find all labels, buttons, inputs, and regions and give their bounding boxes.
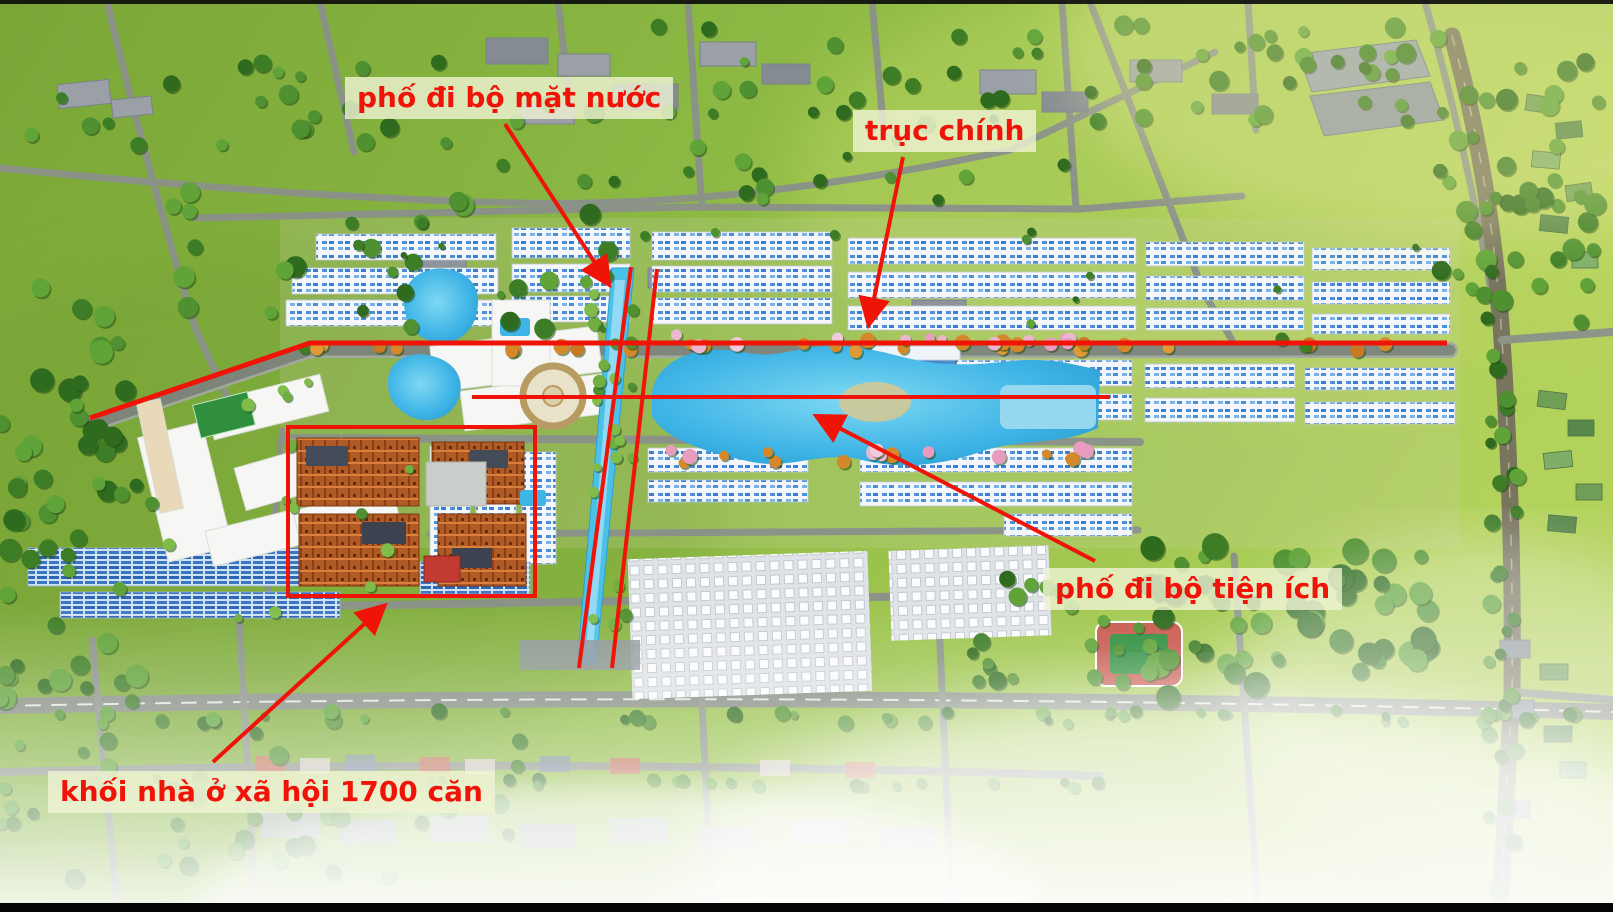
tree	[497, 291, 505, 299]
tree	[1510, 506, 1522, 518]
tree	[671, 329, 682, 340]
tree	[808, 107, 819, 118]
tree	[615, 436, 626, 447]
tree	[30, 368, 54, 392]
tree	[580, 276, 592, 288]
tree	[265, 306, 278, 319]
parking-lot	[426, 462, 486, 506]
tree	[682, 449, 697, 464]
townhouse-row	[1312, 314, 1450, 334]
tree	[1412, 244, 1419, 251]
tree	[593, 375, 606, 388]
tree	[180, 182, 200, 202]
tree	[1026, 319, 1035, 328]
tree	[304, 378, 312, 386]
tree	[449, 192, 468, 211]
townhouse-row	[848, 238, 1136, 264]
building	[1568, 420, 1594, 436]
tree	[849, 92, 865, 108]
tree	[273, 67, 284, 78]
red-kindergarten	[424, 556, 460, 582]
tree	[701, 21, 716, 36]
tree	[827, 37, 843, 53]
tree	[992, 90, 1009, 107]
tree	[431, 55, 446, 70]
tree	[813, 174, 827, 188]
tree	[397, 284, 414, 301]
tree	[1274, 285, 1282, 293]
tree	[279, 85, 298, 104]
tree	[1453, 269, 1464, 280]
townhouse-row	[848, 306, 1136, 330]
tree	[1013, 47, 1023, 57]
tree	[589, 289, 599, 299]
tree	[15, 444, 32, 461]
tree	[165, 198, 181, 214]
tree	[282, 392, 292, 402]
tree	[817, 76, 834, 93]
tree	[959, 170, 973, 184]
townhouse-row	[1312, 282, 1450, 304]
townhouse-row	[1312, 248, 1450, 270]
tree	[284, 440, 297, 453]
tree	[843, 152, 852, 161]
tree	[438, 243, 444, 249]
tree	[401, 252, 407, 258]
tree	[1499, 391, 1516, 408]
tree	[357, 305, 369, 317]
tree	[178, 297, 199, 318]
tree	[1587, 243, 1600, 256]
tree	[40, 539, 57, 556]
tree	[905, 78, 920, 93]
tree	[609, 176, 620, 187]
townhouse-row	[522, 452, 556, 564]
tree	[883, 67, 901, 85]
tree	[837, 455, 851, 469]
building	[111, 96, 153, 118]
tree	[1531, 278, 1547, 294]
tree	[497, 159, 510, 172]
tree	[719, 451, 729, 461]
tree	[690, 139, 706, 155]
tree	[103, 427, 123, 447]
tree	[72, 299, 92, 319]
townhouse-row	[1145, 364, 1295, 388]
annotation-label-social-housing: khối nhà ở xã hội 1700 căn	[48, 771, 495, 813]
townhouse-row	[648, 480, 808, 502]
tree	[740, 57, 749, 66]
tree	[255, 96, 267, 108]
tree	[999, 571, 1015, 587]
tree	[849, 345, 862, 358]
tree	[584, 303, 598, 317]
tree	[173, 266, 195, 288]
tree	[683, 166, 694, 177]
tree	[145, 497, 159, 511]
tree	[3, 509, 25, 531]
tree	[1562, 238, 1584, 260]
tree	[1350, 344, 1364, 358]
tree	[90, 340, 114, 364]
tree	[130, 479, 143, 492]
tree	[1024, 578, 1038, 592]
tree	[21, 550, 40, 569]
tree	[308, 110, 321, 123]
townhouse-row	[1145, 398, 1295, 422]
tree	[92, 477, 105, 490]
tree	[355, 61, 370, 76]
tree	[357, 133, 375, 151]
roof-deck	[306, 446, 348, 466]
tree	[598, 360, 609, 371]
tree	[923, 446, 935, 458]
tree	[187, 239, 202, 254]
townhouse-row	[652, 232, 832, 260]
tree	[111, 336, 125, 350]
tree	[34, 470, 52, 488]
tree	[1140, 536, 1164, 560]
tree	[1476, 287, 1493, 304]
tree	[1079, 444, 1094, 459]
tree	[509, 279, 527, 297]
tree	[1486, 349, 1500, 363]
tree	[627, 304, 639, 316]
tree	[739, 185, 755, 201]
building	[1543, 451, 1573, 470]
tree	[289, 503, 299, 513]
tree	[1485, 265, 1498, 278]
tree	[1288, 548, 1309, 569]
tree	[992, 450, 1006, 464]
tree	[1492, 475, 1508, 491]
tree	[163, 75, 180, 92]
tree	[345, 217, 358, 230]
tree	[713, 81, 731, 99]
tree	[62, 564, 75, 577]
tree	[1484, 515, 1500, 531]
tree	[740, 81, 757, 98]
tree	[885, 172, 896, 183]
tree	[763, 447, 773, 457]
tree	[114, 487, 129, 502]
tree	[70, 529, 87, 546]
tree	[82, 117, 99, 134]
tree	[417, 218, 428, 229]
tree	[1580, 278, 1594, 292]
lagoon-island	[839, 382, 911, 422]
tree	[711, 228, 720, 237]
tree	[295, 71, 305, 81]
tree	[598, 241, 618, 261]
townhouse-row	[1305, 368, 1455, 390]
tree	[103, 117, 114, 128]
building	[486, 38, 548, 64]
tree	[241, 398, 254, 411]
townhouse-row	[1305, 402, 1455, 424]
tree	[951, 29, 966, 44]
tree	[1481, 312, 1494, 325]
tree	[666, 445, 677, 456]
tree	[628, 383, 636, 391]
tree	[932, 194, 943, 205]
tree	[8, 478, 27, 497]
tree	[115, 380, 136, 401]
tree	[756, 193, 768, 205]
tree	[72, 375, 88, 391]
tree	[1086, 272, 1094, 280]
townhouse-row	[652, 266, 832, 292]
tree	[1491, 290, 1512, 311]
building	[762, 64, 810, 84]
tree	[506, 345, 519, 358]
tree	[403, 319, 418, 334]
tree	[238, 59, 253, 74]
tree	[380, 118, 399, 137]
tree	[708, 108, 718, 118]
lap-pool	[1000, 385, 1096, 429]
tree	[1432, 261, 1451, 280]
tree	[1485, 416, 1496, 427]
building	[1537, 390, 1567, 409]
tree	[365, 581, 376, 592]
tree	[860, 333, 875, 348]
annotation-label-water-walkway: phố đi bộ mặt nước	[345, 77, 673, 119]
tree	[70, 399, 83, 412]
tree	[1066, 452, 1080, 466]
tree	[1058, 159, 1071, 172]
tree	[405, 465, 414, 474]
tree	[356, 508, 367, 519]
tree	[580, 204, 601, 225]
building	[558, 54, 610, 76]
tree	[1574, 314, 1589, 329]
townhouse-row	[1146, 242, 1304, 266]
tree	[593, 463, 601, 471]
building	[1576, 484, 1602, 500]
tree	[651, 19, 667, 35]
tree	[94, 306, 115, 327]
tree	[130, 137, 146, 153]
tree	[947, 66, 961, 80]
tree	[588, 487, 599, 498]
tree	[1485, 438, 1496, 449]
tree	[253, 55, 271, 73]
tree	[1509, 469, 1525, 485]
tree	[1202, 533, 1228, 559]
annotation-label-main-axis: trục chính	[853, 110, 1036, 152]
tree	[1073, 296, 1079, 302]
tree	[61, 548, 75, 562]
tree	[381, 543, 395, 557]
tree	[1494, 427, 1511, 444]
tree	[534, 319, 554, 339]
tree	[540, 271, 558, 289]
tree	[830, 230, 840, 240]
tree	[1027, 228, 1036, 237]
tree	[113, 582, 127, 596]
townhouse-row	[1146, 308, 1304, 330]
annotation-label-utility-walkway: phố đi bộ tiện ích	[1043, 568, 1342, 610]
tree	[1507, 251, 1523, 267]
tree	[46, 495, 64, 513]
tree	[163, 538, 175, 550]
tree	[25, 128, 39, 142]
townhouse-row	[860, 482, 1132, 506]
tree	[291, 120, 310, 139]
tree	[640, 231, 650, 241]
tree	[276, 261, 294, 279]
roof-deck	[362, 522, 406, 544]
tree	[1027, 29, 1042, 44]
tree	[1042, 449, 1051, 458]
tree	[599, 325, 605, 331]
top-letterbox	[0, 0, 1613, 4]
tree	[353, 240, 364, 251]
tree	[836, 105, 851, 120]
tree	[440, 137, 451, 148]
bottom-letterbox	[0, 903, 1613, 912]
tree	[500, 312, 519, 331]
tree	[182, 204, 197, 219]
masterplan-rendering: phố đi bộ mặt nước trục chính phố đi bộ …	[0, 0, 1613, 912]
tree	[610, 452, 622, 464]
tree	[577, 174, 591, 188]
tree	[78, 435, 97, 454]
tree	[1032, 48, 1043, 59]
tree	[31, 279, 50, 298]
townhouse-row	[652, 298, 832, 324]
tree	[1022, 235, 1031, 244]
tree	[56, 92, 67, 103]
building	[980, 70, 1036, 94]
tree	[735, 153, 752, 170]
building	[1547, 515, 1576, 533]
tree	[216, 139, 228, 151]
tree	[387, 267, 398, 278]
